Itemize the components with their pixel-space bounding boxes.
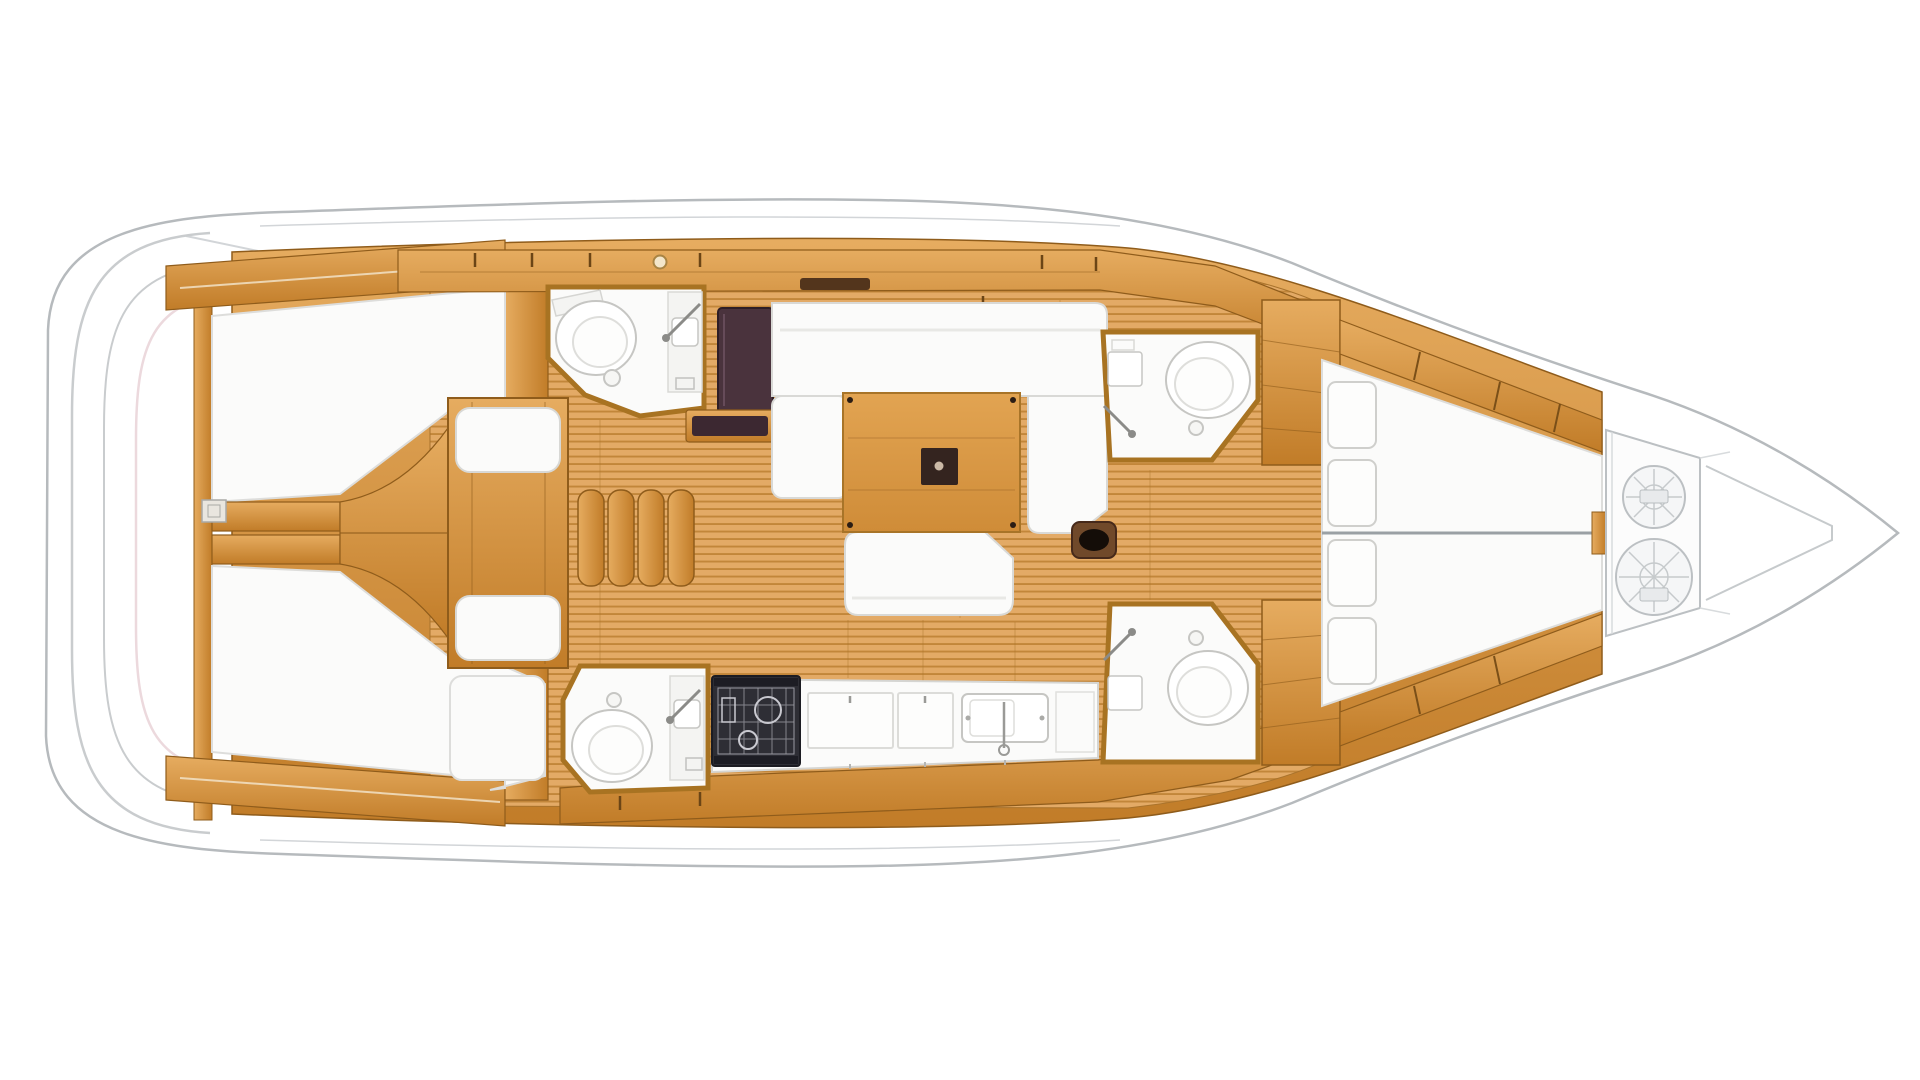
transom-bulkhead (194, 268, 212, 820)
sink-icon (672, 318, 698, 346)
rope-coil-icon (1616, 539, 1692, 615)
floor-drain (1189, 631, 1203, 645)
rope-coil-icon (1623, 466, 1685, 528)
stair-landing-bottom (456, 596, 560, 660)
toilet-icon (572, 710, 652, 782)
sink-icon (1108, 352, 1142, 386)
settee-right-bench (1028, 396, 1107, 533)
floor-drain (607, 693, 621, 707)
floor-drain (604, 370, 620, 386)
settee-back-bench (772, 303, 1107, 396)
toilet-icon (556, 301, 636, 375)
hatch-slot (800, 278, 870, 290)
sink-icon (1108, 676, 1142, 710)
stove-icon (712, 676, 800, 766)
settee-left-bench (772, 396, 848, 498)
toilet-icon (1168, 651, 1248, 725)
mast-foot (654, 256, 667, 269)
nav-locker (692, 416, 768, 436)
aft-seat (450, 676, 545, 780)
sailboat-deck-plan (0, 0, 1920, 1080)
toilet-icon (1166, 342, 1250, 418)
corridor-fitting (202, 500, 226, 522)
salon-table (843, 393, 1020, 532)
deck-plan-stage (0, 0, 1920, 1080)
nav-seat (718, 308, 773, 413)
aft-head-starboard (563, 666, 708, 792)
floor-drain (1189, 421, 1203, 435)
settee-lounge-bench (845, 532, 1013, 615)
stair-landing-top (456, 408, 560, 472)
galley (712, 676, 1098, 772)
berth-tip-trim (1592, 512, 1606, 554)
